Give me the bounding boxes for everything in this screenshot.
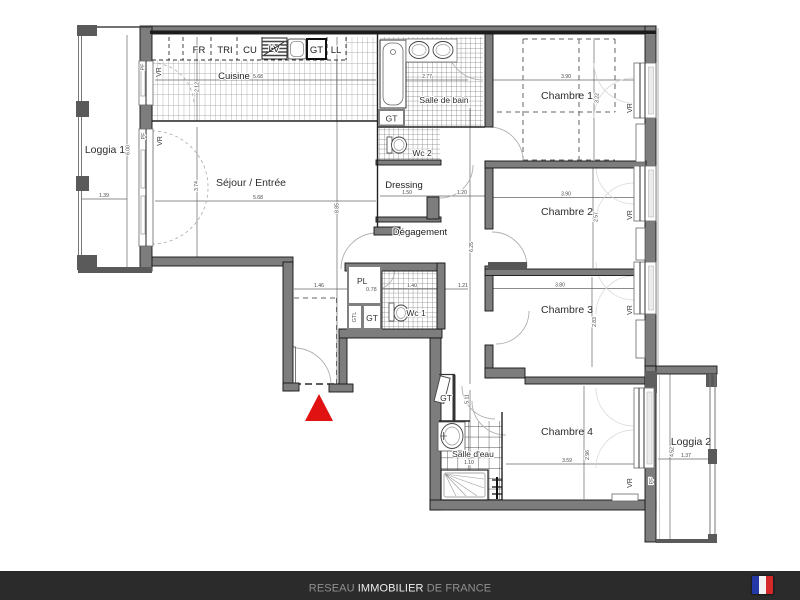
svg-text:PL: PL (357, 276, 368, 286)
svg-text:Salle d'eau: Salle d'eau (452, 449, 494, 459)
svg-text:6.00: 6.00 (126, 145, 132, 155)
svg-text:VR: VR (627, 305, 634, 315)
svg-text:3.90: 3.90 (561, 74, 571, 80)
svg-text:3.22: 3.22 (595, 93, 601, 103)
svg-text:5.68: 5.68 (253, 74, 263, 80)
svg-text:3.90: 3.90 (561, 192, 571, 198)
svg-text:1.50: 1.50 (402, 190, 412, 196)
svg-text:Salle de bain: Salle de bain (419, 95, 468, 105)
svg-text:VR: VR (156, 67, 163, 77)
svg-text:VR: VR (627, 210, 634, 220)
svg-text:2.77: 2.77 (422, 74, 432, 80)
svg-text:Cuisine: Cuisine (218, 71, 250, 82)
svg-text:TRI: TRI (217, 45, 232, 56)
svg-text:1.21: 1.21 (458, 283, 468, 289)
svg-text:GT: GT (366, 313, 378, 323)
svg-text:Dégagement: Dégagement (393, 227, 448, 238)
svg-text:1.37: 1.37 (681, 453, 691, 459)
svg-text:Wc 2: Wc 2 (412, 148, 432, 158)
svg-text:Loggia 2: Loggia 2 (671, 436, 711, 448)
svg-text:RESEAU IMMOBILIER DE FRANCE: RESEAU IMMOBILIER DE FRANCE (309, 583, 491, 595)
svg-text:3.80: 3.80 (555, 283, 565, 289)
svg-text:GT: GT (386, 114, 398, 124)
svg-text:VR: VR (627, 103, 634, 113)
svg-text:8.85: 8.85 (335, 203, 341, 213)
svg-text:1.46: 1.46 (314, 283, 324, 289)
svg-text:2.96: 2.96 (585, 450, 591, 460)
svg-text:1.20: 1.20 (457, 190, 467, 196)
svg-text:Chambre 1: Chambre 1 (541, 90, 593, 102)
svg-text:PF: PF (141, 132, 147, 140)
svg-text:Séjour / Entrée: Séjour / Entrée (216, 177, 286, 189)
svg-text:Wc 1: Wc 1 (406, 308, 426, 318)
svg-text:Chambre 3: Chambre 3 (541, 304, 593, 316)
svg-text:2.12: 2.12 (195, 82, 201, 92)
svg-text:Chambre 2: Chambre 2 (541, 206, 593, 218)
svg-text:GT: GT (440, 393, 452, 403)
svg-text:LL: LL (331, 45, 342, 56)
svg-text:5.11: 5.11 (465, 394, 471, 404)
svg-text:FR: FR (193, 45, 206, 56)
svg-text:3.59: 3.59 (562, 458, 572, 464)
svg-text:1.40: 1.40 (407, 283, 417, 289)
svg-text:CU: CU (243, 45, 257, 56)
svg-text:1.10: 1.10 (464, 460, 474, 466)
svg-text:1.39: 1.39 (99, 193, 109, 199)
svg-text:PF: PF (649, 477, 655, 485)
svg-text:Chambre 4: Chambre 4 (541, 426, 593, 438)
svg-text:GTL: GTL (352, 312, 358, 323)
svg-text:VR: VR (627, 478, 634, 488)
svg-text:2.57: 2.57 (594, 212, 600, 222)
svg-text:0.78: 0.78 (366, 287, 377, 293)
svg-text:5.68: 5.68 (253, 195, 263, 201)
svg-text:4.52: 4.52 (670, 447, 676, 457)
svg-text:PF: PF (141, 63, 147, 71)
svg-text:GT: GT (310, 45, 323, 56)
svg-text:VR: VR (157, 136, 164, 146)
svg-text:Loggia 1: Loggia 1 (85, 144, 125, 156)
svg-text:6.25: 6.25 (469, 242, 475, 252)
svg-text:3.74: 3.74 (194, 181, 200, 191)
svg-text:2.83: 2.83 (592, 317, 598, 327)
